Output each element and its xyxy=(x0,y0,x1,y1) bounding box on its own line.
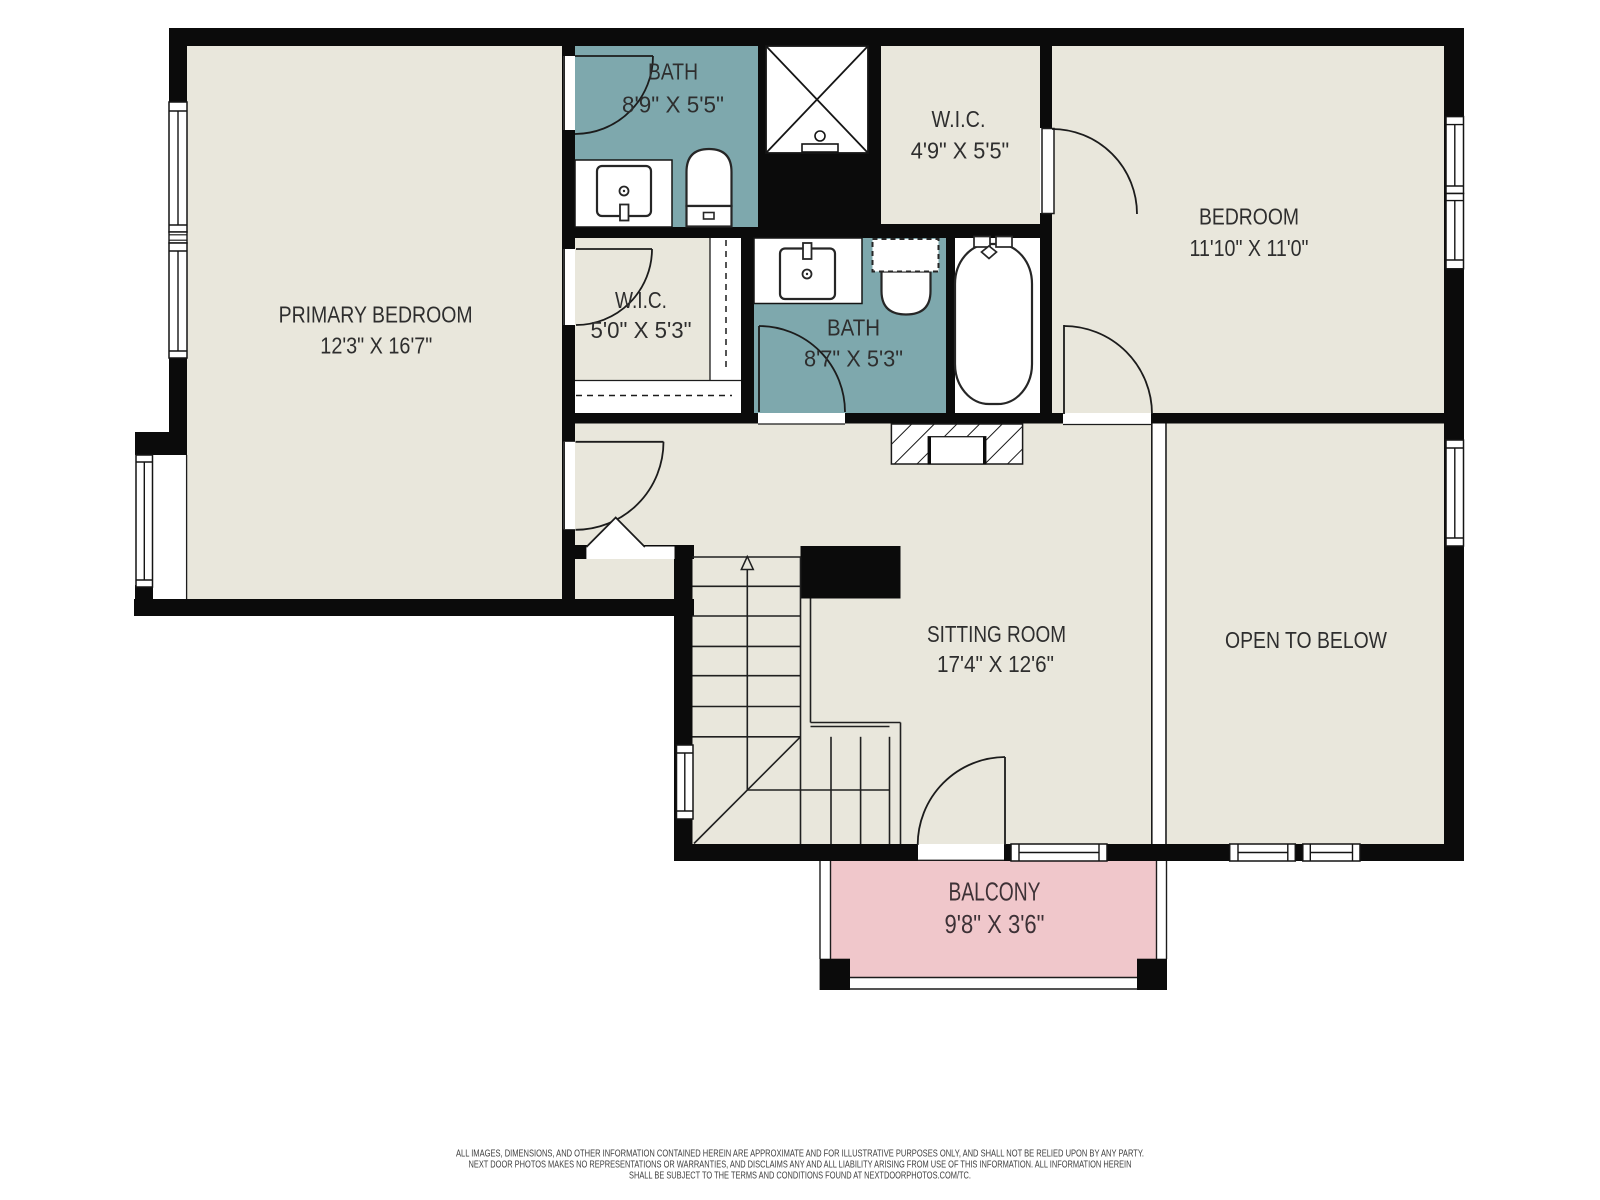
svg-text:SHALL BE SUBJECT TO THE TERMS: SHALL BE SUBJECT TO THE TERMS AND CONDIT… xyxy=(629,1171,971,1182)
svg-text:4'9" X 5'5": 4'9" X 5'5" xyxy=(911,138,1010,164)
svg-text:BALCONY: BALCONY xyxy=(949,879,1041,907)
svg-text:W.I.C.: W.I.C. xyxy=(615,287,667,313)
svg-text:5'0" X 5'3": 5'0" X 5'3" xyxy=(591,317,692,343)
svg-text:ALL IMAGES, DIMENSIONS, AND OT: ALL IMAGES, DIMENSIONS, AND OTHER INFORM… xyxy=(456,1149,1144,1160)
svg-text:PRIMARY BEDROOM: PRIMARY BEDROOM xyxy=(279,302,473,328)
svg-text:BEDROOM: BEDROOM xyxy=(1199,204,1299,230)
svg-text:8'9" X 5'5": 8'9" X 5'5" xyxy=(622,92,724,118)
svg-text:11'10" X 11'0": 11'10" X 11'0" xyxy=(1190,235,1309,261)
svg-text:17'4" X 12'6": 17'4" X 12'6" xyxy=(937,651,1054,677)
svg-text:SITTING ROOM: SITTING ROOM xyxy=(927,621,1066,647)
svg-text:W.I.C.: W.I.C. xyxy=(932,106,986,132)
svg-text:OPEN TO BELOW: OPEN TO BELOW xyxy=(1225,627,1387,653)
svg-text:BATH: BATH xyxy=(648,59,698,85)
svg-text:NEXT DOOR PHOTOS MAKES NO REPR: NEXT DOOR PHOTOS MAKES NO REPRESENTATION… xyxy=(469,1160,1132,1171)
svg-text:12'3" X 16'7": 12'3" X 16'7" xyxy=(320,333,432,359)
svg-text:BATH: BATH xyxy=(827,315,880,341)
svg-text:9'8" X 3'6": 9'8" X 3'6" xyxy=(945,911,1045,939)
svg-text:8'7" X 5'3": 8'7" X 5'3" xyxy=(804,346,903,372)
